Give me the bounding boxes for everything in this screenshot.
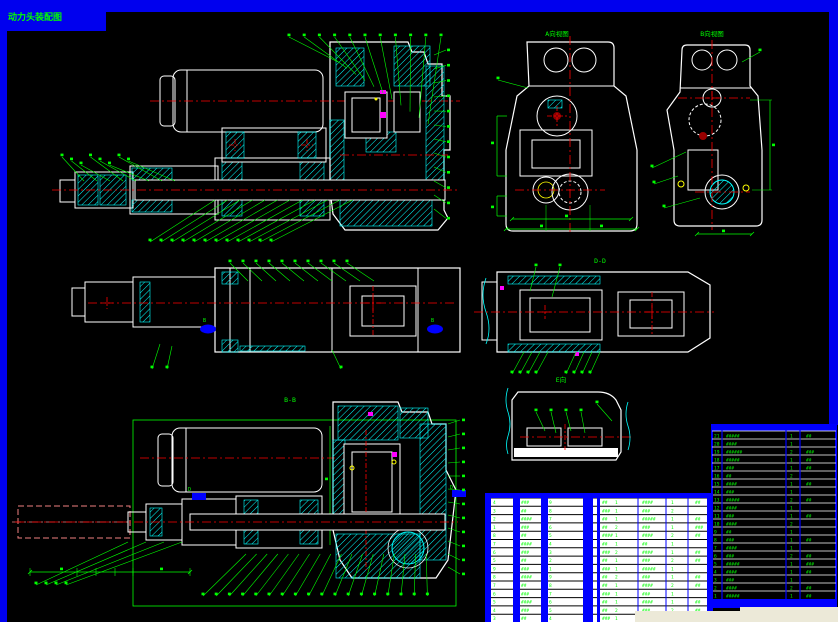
- svg-text:1: 1: [615, 566, 618, 572]
- svg-text:###: ###: [642, 508, 650, 514]
- svg-text:##: ##: [602, 542, 608, 548]
- svg-text:#####: #####: [726, 594, 740, 600]
- svg-text:1: 1: [549, 566, 552, 572]
- svg-text:####: ####: [726, 506, 737, 512]
- svg-text:###: ###: [695, 525, 703, 531]
- svg-text:8: 8: [714, 538, 717, 544]
- svg-text:1: 1: [790, 546, 793, 552]
- svg-text:##: ##: [521, 508, 527, 514]
- svg-text:###: ###: [726, 578, 734, 584]
- svg-text:##: ##: [602, 608, 608, 614]
- svg-text:###: ###: [602, 550, 610, 556]
- svg-text:5: 5: [493, 558, 496, 564]
- svg-text:1: 1: [615, 558, 618, 564]
- svg-text:6: 6: [549, 600, 552, 606]
- svg-text:#####: #####: [726, 434, 740, 440]
- svg-text:3: 3: [493, 508, 496, 514]
- svg-text:2: 2: [714, 586, 717, 592]
- svg-text:##: ##: [642, 542, 648, 548]
- svg-text:####: ####: [726, 546, 737, 552]
- svg-text:1: 1: [790, 530, 793, 536]
- svg-text:####: ####: [521, 517, 532, 523]
- svg-text:6: 6: [493, 591, 496, 597]
- svg-text:1: 1: [615, 517, 618, 523]
- svg-text:15: 15: [714, 482, 720, 488]
- svg-text:9: 9: [549, 575, 552, 581]
- svg-text:1: 1: [790, 466, 793, 472]
- svg-text:20: 20: [714, 442, 720, 448]
- svg-text:###: ###: [642, 575, 650, 581]
- svg-text:4: 4: [714, 570, 717, 576]
- svg-text:##: ##: [695, 583, 701, 589]
- svg-text:#####: #####: [726, 458, 740, 464]
- svg-text:###: ###: [642, 525, 650, 531]
- svg-text:##: ##: [602, 500, 608, 506]
- svg-text:2: 2: [615, 525, 618, 531]
- front-view-label: A向视图: [545, 29, 568, 38]
- svg-text:10: 10: [714, 522, 720, 528]
- svg-text:1: 1: [790, 514, 793, 520]
- svg-text:##: ##: [695, 500, 701, 506]
- svg-text:14: 14: [714, 490, 720, 496]
- svg-text:#####: #####: [726, 562, 740, 568]
- svg-text:####: ####: [726, 482, 737, 488]
- svg-text:##: ##: [806, 538, 812, 544]
- svg-text:2: 2: [790, 474, 793, 480]
- svg-text:8: 8: [493, 533, 496, 539]
- svg-text:##: ##: [602, 558, 608, 564]
- svg-text:####: ####: [602, 533, 613, 539]
- svg-text:###: ###: [726, 538, 734, 544]
- svg-text:9: 9: [549, 500, 552, 506]
- svg-text:18: 18: [714, 458, 720, 464]
- svg-text:##: ##: [602, 575, 608, 581]
- svg-text:3: 3: [549, 550, 552, 556]
- svg-text:1: 1: [615, 508, 618, 514]
- svg-text:16: 16: [714, 474, 720, 480]
- svg-text:######: ######: [726, 450, 743, 456]
- svg-text:##: ##: [806, 458, 812, 464]
- svg-text:1: 1: [615, 600, 618, 606]
- svg-text:1: 1: [790, 594, 793, 600]
- svg-text:##: ##: [806, 594, 812, 600]
- svg-text:1: 1: [790, 434, 793, 440]
- svg-text:##: ##: [695, 600, 701, 606]
- svg-text:1: 1: [671, 591, 674, 597]
- svg-text:##: ##: [695, 558, 701, 564]
- svg-text:1: 1: [790, 506, 793, 512]
- section-marker-plan-right: B: [431, 318, 434, 324]
- svg-text:##: ##: [806, 586, 812, 592]
- svg-text:8: 8: [493, 575, 496, 581]
- svg-text:1: 1: [615, 542, 618, 548]
- svg-text:7: 7: [549, 517, 552, 523]
- svg-text:####: ####: [726, 442, 737, 448]
- svg-text:###: ###: [726, 490, 734, 496]
- svg-text:##: ##: [521, 533, 527, 539]
- svg-text:2: 2: [790, 522, 793, 528]
- section-marker-plan-left: B: [203, 318, 206, 324]
- svg-text:##: ##: [726, 474, 732, 480]
- svg-text:1: 1: [671, 542, 674, 548]
- svg-text:6: 6: [493, 550, 496, 556]
- svg-text:##: ##: [806, 570, 812, 576]
- svg-text:1: 1: [615, 500, 618, 506]
- svg-text:19: 19: [714, 450, 720, 456]
- svg-text:#####: #####: [642, 517, 656, 523]
- svg-text:1: 1: [790, 570, 793, 576]
- svg-text:2: 2: [790, 498, 793, 504]
- rear-view-label: B向视图: [700, 29, 723, 38]
- svg-text:###: ###: [602, 616, 610, 622]
- svg-text:###: ###: [726, 466, 734, 472]
- svg-text:1: 1: [671, 500, 674, 506]
- svg-text:1: 1: [790, 490, 793, 496]
- svg-text:2: 2: [615, 575, 618, 581]
- parts-table-extension[interactable]: 4###9##1####1##3##8###1###22####7##1####…: [485, 493, 713, 622]
- svg-text:####: ####: [521, 542, 532, 548]
- svg-text:1: 1: [790, 578, 793, 584]
- svg-text:##: ##: [806, 514, 812, 520]
- svg-text:7: 7: [493, 583, 496, 589]
- svg-text:###: ###: [806, 562, 814, 568]
- svg-text:##: ##: [521, 558, 527, 564]
- svg-text:###: ###: [642, 591, 650, 597]
- svg-text:5: 5: [714, 562, 717, 568]
- svg-text:9: 9: [714, 530, 717, 536]
- svg-text:##: ##: [602, 525, 608, 531]
- svg-text:4: 4: [493, 608, 496, 614]
- svg-text:####: ####: [726, 522, 737, 528]
- svg-text:1: 1: [615, 583, 618, 589]
- svg-text:##: ##: [695, 550, 701, 556]
- svg-text:2: 2: [615, 608, 618, 614]
- svg-text:##: ##: [695, 575, 701, 581]
- svg-text:####: ####: [642, 550, 653, 556]
- svg-text:##: ##: [602, 517, 608, 523]
- parts-table[interactable]: 21#####1##20####119######2###18#####1##1…: [712, 425, 836, 607]
- svg-text:1: 1: [790, 562, 793, 568]
- svg-text:6: 6: [549, 525, 552, 531]
- svg-text:##: ##: [806, 434, 812, 440]
- svg-text:1: 1: [790, 458, 793, 464]
- svg-text:4: 4: [493, 500, 496, 506]
- svg-text:1: 1: [671, 566, 674, 572]
- svg-text:3: 3: [714, 578, 717, 584]
- svg-text:2: 2: [615, 550, 618, 556]
- svg-text:7: 7: [714, 546, 717, 552]
- svg-text:#####: #####: [726, 498, 740, 504]
- drawing-tab-title: 动力头装配图: [8, 11, 62, 23]
- svg-text:5: 5: [549, 608, 552, 614]
- svg-text:###: ###: [521, 500, 529, 506]
- svg-text:1: 1: [615, 533, 618, 539]
- svg-text:8: 8: [549, 508, 552, 514]
- svg-text:#####: #####: [642, 566, 656, 572]
- svg-text:####: ####: [726, 586, 737, 592]
- svg-text:8: 8: [549, 583, 552, 589]
- svg-text:21: 21: [714, 434, 720, 440]
- bottom-section-label: B-B: [284, 396, 296, 404]
- svg-text:12: 12: [714, 506, 720, 512]
- svg-text:1: 1: [790, 482, 793, 488]
- svg-text:##: ##: [726, 530, 732, 536]
- svg-text:4: 4: [549, 616, 552, 622]
- svg-text:###: ###: [521, 550, 529, 556]
- svg-text:7: 7: [493, 542, 496, 548]
- svg-text:17: 17: [714, 466, 720, 472]
- svg-text:1: 1: [790, 442, 793, 448]
- svg-text:##: ##: [806, 482, 812, 488]
- svg-text:###: ###: [642, 558, 650, 564]
- svg-text:4: 4: [549, 542, 552, 548]
- svg-text:7: 7: [549, 591, 552, 597]
- svg-text:####: ####: [726, 570, 737, 576]
- svg-text:13: 13: [714, 498, 720, 504]
- drawing-canvas[interactable]: 21#####1##20####119######2###18#####1##1…: [0, 0, 838, 622]
- svg-text:11: 11: [714, 514, 720, 520]
- svg-text:2: 2: [790, 554, 793, 560]
- svg-text:##: ##: [806, 554, 812, 560]
- svg-text:####: ####: [521, 600, 532, 606]
- svg-text:####: ####: [521, 575, 532, 581]
- svg-text:2: 2: [549, 558, 552, 564]
- svg-text:6: 6: [714, 554, 717, 560]
- svg-text:1: 1: [790, 538, 793, 544]
- svg-text:###: ###: [521, 525, 529, 531]
- svg-text:###: ###: [602, 591, 610, 597]
- svg-text:####: ####: [642, 600, 653, 606]
- svg-text:2: 2: [671, 583, 674, 589]
- svg-text:2: 2: [671, 558, 674, 564]
- svg-text:1: 1: [671, 525, 674, 531]
- svg-text:2: 2: [790, 450, 793, 456]
- svg-text:##: ##: [695, 517, 701, 523]
- svg-text:1: 1: [671, 517, 674, 523]
- svg-text:5: 5: [549, 533, 552, 539]
- svg-text:1: 1: [671, 575, 674, 581]
- svg-text:1: 1: [671, 550, 674, 556]
- svg-text:##: ##: [521, 616, 527, 622]
- svg-text:##: ##: [806, 498, 812, 504]
- detail-view-label: E向: [556, 375, 566, 384]
- svg-text:2: 2: [671, 533, 674, 539]
- svg-text:1: 1: [493, 525, 496, 531]
- svg-text:##: ##: [602, 600, 608, 606]
- svg-text:###: ###: [726, 554, 734, 560]
- svg-text:###: ###: [806, 450, 814, 456]
- svg-text:2: 2: [493, 517, 496, 523]
- svg-text:3: 3: [493, 616, 496, 622]
- svg-text:9: 9: [493, 566, 496, 572]
- svg-text:##: ##: [695, 533, 701, 539]
- svg-text:##: ##: [806, 466, 812, 472]
- svg-text:####: ####: [642, 583, 653, 589]
- svg-text:##: ##: [602, 583, 608, 589]
- svg-text:1: 1: [615, 591, 618, 597]
- svg-text:###: ###: [521, 591, 529, 597]
- mid-section-label: D-D: [594, 257, 606, 265]
- svg-text:1: 1: [671, 600, 674, 606]
- svg-text:1: 1: [615, 616, 618, 622]
- svg-text:###: ###: [521, 608, 529, 614]
- svg-text:###: ###: [726, 514, 734, 520]
- svg-text:1: 1: [714, 594, 717, 600]
- svg-text:2: 2: [790, 586, 793, 592]
- section-marker-bottom-right: D: [450, 485, 453, 491]
- svg-text:###: ###: [521, 566, 529, 572]
- svg-text:###: ###: [602, 566, 610, 572]
- svg-text:####: ####: [642, 500, 653, 506]
- svg-text:####: ####: [642, 533, 653, 539]
- section-marker-bottom-left: D: [188, 487, 191, 493]
- svg-text:##: ##: [521, 583, 527, 589]
- svg-text:###: ###: [602, 508, 610, 514]
- svg-text:2: 2: [671, 508, 674, 514]
- cad-window: 21#####1##20####119######2###18#####1##1…: [0, 0, 838, 622]
- svg-text:5: 5: [493, 600, 496, 606]
